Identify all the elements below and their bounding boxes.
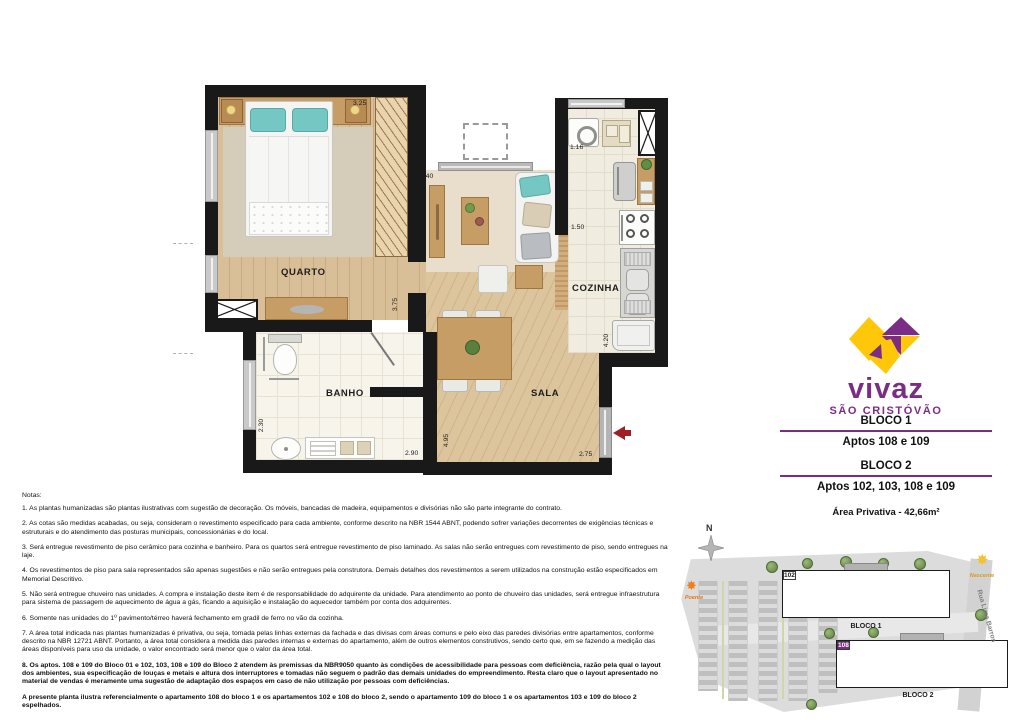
foot-blanket xyxy=(249,202,329,235)
kitchen-chair xyxy=(640,193,653,203)
pillow xyxy=(250,108,286,132)
lamp-left xyxy=(226,105,236,115)
towels xyxy=(310,441,336,456)
sofa-pillow xyxy=(522,202,552,229)
grab-bar xyxy=(269,378,299,380)
bloco1-aptos: Aptos 108 e 109 xyxy=(780,436,992,448)
wall xyxy=(205,85,426,97)
unit-108: 108 xyxy=(837,641,850,650)
bloco1-building: 108107106105104103109110101102 xyxy=(782,570,950,618)
counter-item xyxy=(340,441,354,455)
sofa-pillow xyxy=(519,174,551,198)
bloco2-building: 102101110109103104105106107108 xyxy=(836,640,1008,688)
vivaz-heart-logo-icon xyxy=(847,316,925,376)
plant xyxy=(475,217,484,226)
tree xyxy=(914,558,926,570)
burner xyxy=(626,229,635,238)
tree xyxy=(806,699,817,710)
note-item: A presente planta ilustra referencialmen… xyxy=(22,694,668,711)
stove xyxy=(619,210,655,245)
notes-list: 1. As plantas humanizadas são plantas il… xyxy=(22,505,668,710)
notes: Notas: 1. As plantas humanizadas são pla… xyxy=(22,492,668,717)
wall xyxy=(205,85,218,332)
wall xyxy=(555,98,568,235)
dim-label: 3.25 xyxy=(353,100,366,107)
wall xyxy=(408,293,426,332)
private-area-label: Área Privativa - 42,66m² xyxy=(780,507,992,518)
dimension-line xyxy=(173,353,193,354)
wardrobe xyxy=(375,97,408,257)
toilet-tank xyxy=(268,334,302,343)
wall xyxy=(370,387,426,397)
floorplan-page: QUARTO BANHO SALA COZINHA 3.25 2.40 1.16… xyxy=(0,0,1018,720)
optional-area-dashed-box xyxy=(463,123,508,160)
grab-bar xyxy=(263,337,265,371)
burner xyxy=(640,229,649,238)
bloco1-title: BLOCO 1 xyxy=(780,415,992,427)
toilet xyxy=(273,344,297,375)
sideboard xyxy=(429,185,445,258)
dim-label: 4.20 xyxy=(603,334,610,347)
dim-label: 3.75 xyxy=(392,298,399,311)
wall xyxy=(423,462,612,475)
table-plant xyxy=(465,340,480,355)
bloco1-label: BLOCO 1 xyxy=(826,623,906,630)
fridge xyxy=(613,162,636,201)
notes-heading: Notas: xyxy=(22,492,668,499)
tree xyxy=(766,561,778,573)
dim-label: 1.16 xyxy=(570,144,583,151)
wall xyxy=(423,332,437,462)
note-item: 2. As cotas são medidas acabadas, ou sej… xyxy=(22,520,668,537)
tree xyxy=(802,558,813,569)
room-label-quarto: QUARTO xyxy=(281,267,326,278)
poof xyxy=(478,265,508,293)
dresser xyxy=(265,297,348,320)
room-label-banho: BANHO xyxy=(326,388,364,399)
north-label: N xyxy=(706,523,713,533)
sink-bowl xyxy=(626,269,649,291)
bloco2-aptos: Aptos 102, 103, 108 e 109 xyxy=(780,481,992,493)
divider xyxy=(780,475,992,477)
parking-row xyxy=(758,581,778,701)
room-label-sala: SALA xyxy=(531,388,559,399)
nascente-label: Nascente xyxy=(962,573,1002,579)
sofa-pillow xyxy=(520,232,552,260)
kitchen-sink xyxy=(620,248,655,318)
info-panel: BLOCO 1 Aptos 108 e 109 BLOCO 2 Aptos 10… xyxy=(780,415,992,518)
side-table xyxy=(515,265,543,289)
drain-board xyxy=(624,252,651,266)
brand-name: vivaz xyxy=(780,374,992,404)
note-item: 1. As plantas humanizadas são plantas il… xyxy=(22,505,668,513)
dim-label: 2.90 xyxy=(405,450,418,457)
shaft-duct xyxy=(211,299,258,320)
compass-icon xyxy=(698,535,724,561)
entrance-arrow-icon xyxy=(624,430,631,436)
dim-label: 2.75 xyxy=(579,451,592,458)
window xyxy=(205,130,218,202)
sun-icon: ✸ xyxy=(686,579,697,592)
dim-label: 1.50 xyxy=(571,224,584,231)
burner xyxy=(626,214,635,223)
dimension-line xyxy=(173,243,193,244)
note-item: 8. Os aptos. 108 e 109 do Bloco 01 e 102… xyxy=(22,662,668,687)
brand-block: vivaz SÃO CRISTÓVÃO xyxy=(780,316,992,417)
note-item: 6. Somente nas unidades do 1º pavimento/… xyxy=(22,615,668,623)
entry-door xyxy=(599,407,612,458)
note-item: 5. Não será entregue chuveiro nas unidad… xyxy=(22,591,668,608)
dim-label: 2.30 xyxy=(258,419,265,432)
window xyxy=(438,162,533,171)
kitchen-appliance xyxy=(612,320,655,351)
hall-floor xyxy=(408,262,426,293)
dim-label: 4.95 xyxy=(443,434,450,447)
bloco2-label: BLOCO 2 xyxy=(878,692,958,699)
window xyxy=(568,99,625,108)
wall xyxy=(243,460,428,473)
divider xyxy=(780,430,992,432)
note-item: 3. Será entregue revestimento de piso ce… xyxy=(22,544,668,561)
window xyxy=(205,255,218,293)
wall xyxy=(655,98,668,367)
laundry-tank xyxy=(602,120,631,147)
floor-plan: QUARTO BANHO SALA COZINHA 3.25 2.40 1.16… xyxy=(193,85,671,477)
note-item: 4. Os revestimentos de piso para sala re… xyxy=(22,567,668,584)
double-bed xyxy=(245,101,333,237)
site-plan: 108107106105104103109110101102 102101110… xyxy=(678,523,1012,717)
kitchen-chair xyxy=(640,181,653,191)
parking-row xyxy=(728,581,748,701)
drain-board xyxy=(624,300,651,314)
note-item: 7. A área total indicada nas plantas hum… xyxy=(22,630,668,655)
pillow xyxy=(292,108,328,132)
plant xyxy=(465,203,475,213)
burner xyxy=(640,214,649,223)
wall xyxy=(205,320,372,332)
unit-102: 102 xyxy=(783,571,796,580)
window xyxy=(243,360,256,430)
room-label-cozinha: COZINHA xyxy=(572,283,619,294)
poente-label: Poente xyxy=(674,595,714,601)
counter-item xyxy=(357,441,371,455)
dim-label: 2.40 xyxy=(420,173,433,180)
kitchen-plant xyxy=(641,159,652,170)
washing-machine xyxy=(568,118,599,147)
bloco2-title: BLOCO 2 xyxy=(780,460,992,472)
bathroom-counter xyxy=(305,437,375,459)
green-strip xyxy=(722,581,724,699)
washbasin xyxy=(271,437,301,460)
sun-icon: ✸ xyxy=(976,554,989,567)
